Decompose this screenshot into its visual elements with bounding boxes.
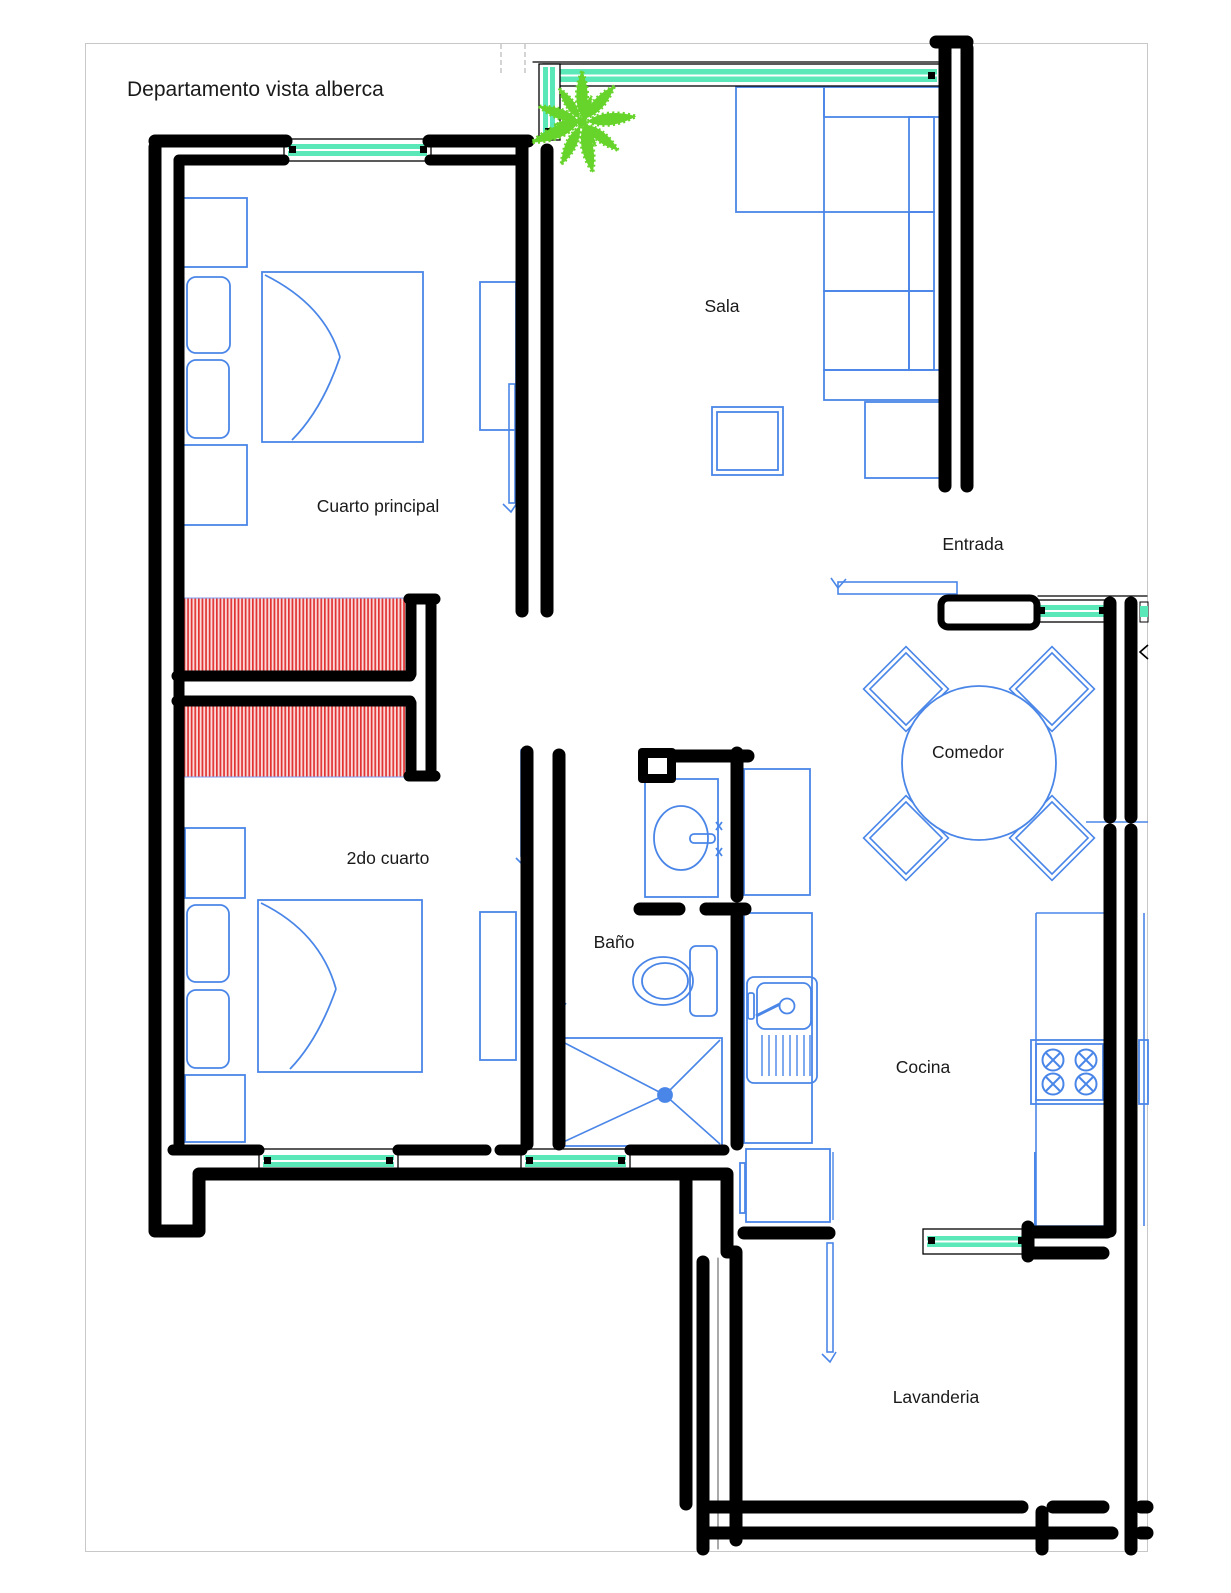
entry-threshold bbox=[941, 598, 1037, 627]
shower-drain bbox=[658, 1088, 672, 1102]
round-dining-table bbox=[902, 686, 1056, 840]
window bbox=[543, 64, 941, 86]
window bbox=[284, 139, 431, 161]
room-label-entrada: Entrada bbox=[942, 534, 1004, 554]
room-label-bano: Baño bbox=[594, 932, 635, 952]
room-label-lavanderia: Lavanderia bbox=[893, 1387, 980, 1407]
floor-plan-page: Departamento vista alberca Sala Cuarto p… bbox=[0, 0, 1231, 1593]
closet-hatch bbox=[183, 697, 408, 777]
room-label-comedor: Comedor bbox=[932, 742, 1004, 762]
room-label-2do-cuarto: 2do cuarto bbox=[347, 848, 430, 868]
wall-duct bbox=[638, 748, 676, 783]
room-label-cocina: Cocina bbox=[896, 1057, 951, 1077]
floor-plan-drawing: Departamento vista alberca Sala Cuarto p… bbox=[0, 0, 1231, 1593]
closet-hatch bbox=[183, 598, 408, 677]
window bbox=[923, 1229, 1031, 1254]
room-label-sala: Sala bbox=[704, 296, 739, 316]
page-title: Departamento vista alberca bbox=[127, 78, 384, 101]
room-label-cuarto-principal: Cuarto principal bbox=[317, 496, 440, 516]
